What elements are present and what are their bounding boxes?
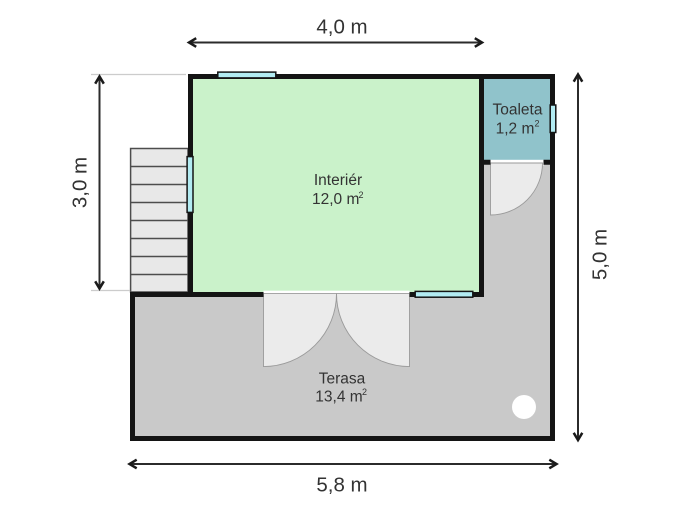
svg-text:5,0 m: 5,0 m (589, 229, 612, 280)
svg-text:3,0 m: 3,0 m (69, 157, 92, 208)
svg-text:Interiér: Interiér (314, 172, 362, 189)
svg-text:Terasa: Terasa (319, 371, 366, 388)
svg-text:1,2 m: 1,2 m (496, 120, 535, 137)
svg-text:2: 2 (535, 119, 540, 129)
svg-text:2: 2 (359, 190, 364, 200)
svg-text:5,8 m: 5,8 m (316, 474, 367, 497)
svg-text:4,0 m: 4,0 m (316, 16, 367, 39)
svg-text:2: 2 (362, 387, 367, 397)
svg-text:13,4 m: 13,4 m (315, 389, 362, 406)
svg-text:12,0 m: 12,0 m (312, 191, 359, 208)
svg-text:Toaleta: Toaleta (493, 102, 543, 119)
